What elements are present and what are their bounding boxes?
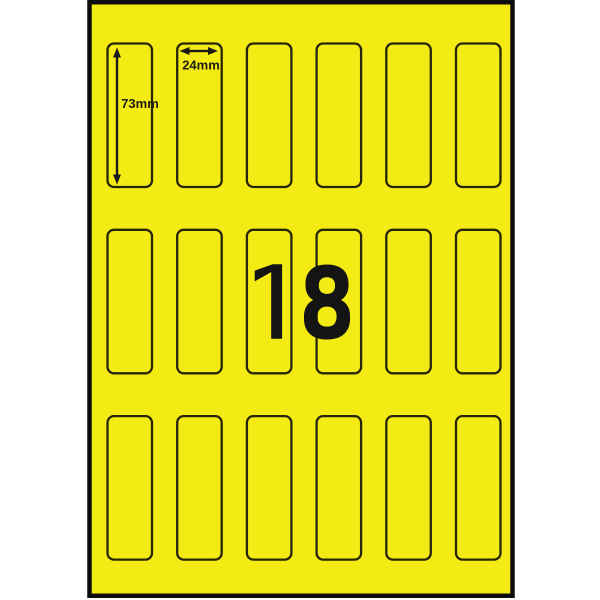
svg-text:24mm: 24mm <box>182 58 220 73</box>
svg-text:73mm: 73mm <box>121 96 159 111</box>
